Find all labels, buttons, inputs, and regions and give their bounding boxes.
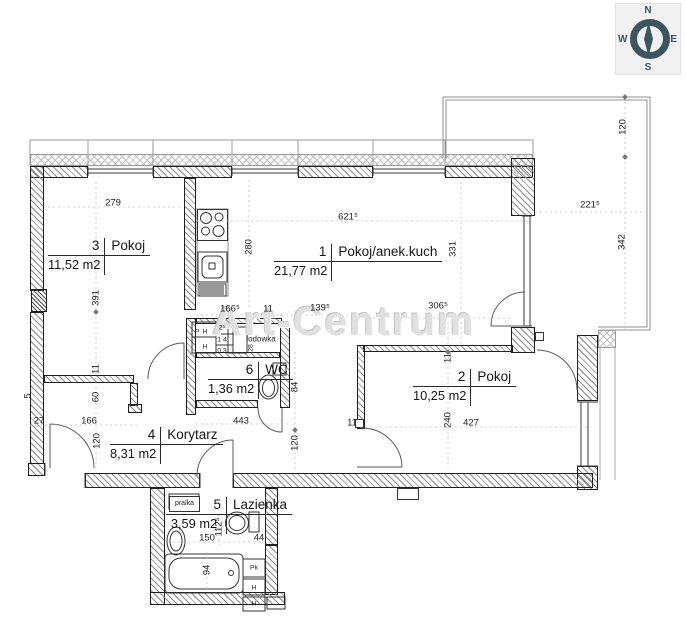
- room-tag-rule: [160, 445, 222, 464]
- dimension-label: 120: [290, 435, 301, 451]
- room-tag-rule: [258, 380, 293, 399]
- compass-west-label: W: [618, 34, 627, 45]
- room-number: 1: [274, 244, 331, 262]
- dimension-label: 27: [34, 416, 45, 427]
- dimension-label: 621⁵: [338, 212, 358, 223]
- dimension-label: 240: [443, 412, 454, 428]
- dimension-label: 120: [618, 119, 629, 135]
- dimension-label: 342: [617, 234, 628, 250]
- room-area: 1,36 m2: [208, 380, 258, 399]
- room-number: 4: [110, 427, 160, 445]
- small-label: H: [203, 344, 208, 351]
- small-label: Pk: [250, 565, 258, 572]
- room-area: 10,25 m2: [413, 387, 470, 406]
- dimension-label: 139⁵: [310, 303, 330, 314]
- dimension-label: 60: [91, 392, 102, 403]
- room-name: WC: [258, 362, 293, 380]
- room-area: 8,31 m2: [110, 445, 160, 464]
- room-name: Pokoj: [104, 238, 150, 256]
- small-label: H: [252, 601, 257, 608]
- room-name: Korytarz: [160, 427, 222, 445]
- compass-east-label: E: [670, 34, 677, 45]
- dimension-label: 331: [448, 241, 459, 257]
- room-tag-rule: [104, 256, 150, 275]
- room-name: Lazienka: [226, 497, 292, 515]
- compass-rose: N E S W: [615, 3, 681, 75]
- dimension-label: 44: [254, 533, 265, 544]
- dimension-label: 166⁵: [220, 304, 240, 315]
- dimension-label: 11: [91, 364, 102, 374]
- washer-label: pralka: [175, 500, 194, 507]
- room-area: 11,52 m2: [48, 256, 104, 275]
- small-label: 2⁵: [219, 325, 226, 332]
- room-number: 6: [208, 362, 258, 380]
- plan-linework: [0, 0, 686, 640]
- dimension-label: 391: [91, 290, 102, 306]
- dimension-label: 280: [244, 239, 255, 255]
- room-tag-rule: [331, 262, 442, 281]
- room-name: Pokoj: [470, 369, 516, 387]
- room-name: Pokoj/anek.kuch: [331, 244, 442, 262]
- sanitary-fixtures: [165, 363, 286, 611]
- small-label: P: [195, 329, 200, 336]
- dimension-label: 221⁵: [580, 200, 600, 211]
- room-number: 3: [48, 238, 104, 256]
- room-label-6: 6 WC 1,36 m2: [208, 362, 293, 399]
- small-label: lodowka: [246, 335, 275, 344]
- dimension-label: 279: [105, 198, 121, 209]
- room-label-1: 1 Pokoj/anek.kuch 21,77 m2: [274, 244, 442, 281]
- room-label-3: 3 Pokoj 11,52 m2: [48, 238, 150, 275]
- small-label: H: [203, 329, 208, 336]
- dimension-label: 166: [81, 416, 97, 427]
- small-label: 1 4: [217, 337, 226, 344]
- small-label: H: [252, 585, 257, 592]
- room-label-2: 2 Pokoj 10,25 m2: [413, 369, 516, 406]
- dimension-label: 11: [347, 418, 357, 429]
- dimension-label: 5: [23, 393, 34, 398]
- compass-north-label: N: [616, 5, 680, 16]
- balcony-slab-lines: [30, 140, 533, 166]
- dimension-label: 11: [263, 304, 273, 315]
- compass-south-label: S: [616, 62, 680, 73]
- room-area: 3,59 m2: [166, 515, 226, 534]
- dimension-label: 11: [443, 353, 454, 363]
- room-tag-rule: [470, 387, 516, 406]
- floor-plan: 279391280621⁵331120221⁵342166⁵11139⁵306⁵…: [0, 0, 686, 640]
- dimension-label: 94: [202, 565, 213, 576]
- room-area: 21,77 m2: [274, 262, 331, 281]
- dimension-label: 120: [92, 433, 103, 449]
- room-label-4: 4 Korytarz 8,31 m2: [110, 427, 223, 464]
- washer-label-box: pralka: [169, 496, 200, 512]
- room-number: 2: [413, 369, 470, 387]
- dimension-label: 427: [463, 418, 479, 429]
- small-label: 0 3: [217, 348, 226, 355]
- dimension-label: 443: [233, 416, 249, 427]
- dimension-label: 306⁵: [428, 301, 448, 312]
- dimension-lines: [30, 97, 648, 592]
- small-label: 28: [248, 344, 255, 352]
- room-tag-rule: [226, 515, 292, 534]
